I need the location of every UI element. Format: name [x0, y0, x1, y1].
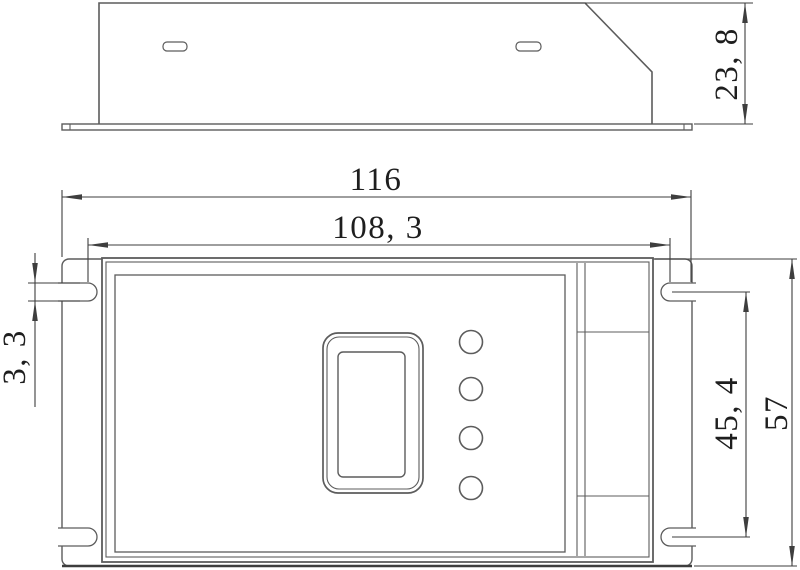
plan-view: 116 108, 3 3, 3 45, 4	[0, 162, 797, 566]
arrowhead-down	[742, 104, 748, 124]
body-outline-outer	[102, 258, 653, 562]
vent-slot-left	[163, 42, 187, 51]
dim-label-overall-width: 116	[350, 162, 403, 198]
engineering-drawing: 23, 8	[0, 0, 800, 570]
dimension-mount-slot-span-height: 45, 4	[672, 292, 750, 537]
mount-slot-bottom-left	[58, 528, 97, 546]
dimension-mount-slot-height: 3, 3	[0, 253, 80, 407]
arrowhead-up	[743, 292, 749, 312]
dim-label-mount-slot-span-width: 108, 3	[332, 210, 424, 246]
side-base-flange	[62, 124, 692, 130]
dim-label-side-height: 23, 8	[709, 27, 745, 101]
arrowhead-right	[671, 194, 691, 200]
side-view: 23, 8	[62, 3, 753, 130]
arrowhead-left	[88, 242, 108, 248]
side-body-outline	[99, 3, 652, 124]
arrowhead-up	[789, 259, 795, 279]
dim-label-overall-height: 57	[759, 395, 795, 431]
dim-label-mount-slot-span-height: 45, 4	[709, 376, 745, 450]
dimension-side-height: 23, 8	[585, 3, 753, 124]
dim-label-mount-slot-height: 3, 3	[0, 329, 33, 385]
mount-slot-top-left	[58, 283, 97, 301]
vent-slot-right	[516, 42, 541, 51]
arrowhead-right	[650, 242, 670, 248]
arrowhead-down	[743, 517, 749, 537]
arrowhead-left	[62, 194, 82, 200]
arrowhead-down	[789, 546, 795, 566]
arrowhead-up	[742, 3, 748, 23]
arrowhead-down	[32, 263, 38, 283]
arrowhead-up	[32, 301, 38, 321]
